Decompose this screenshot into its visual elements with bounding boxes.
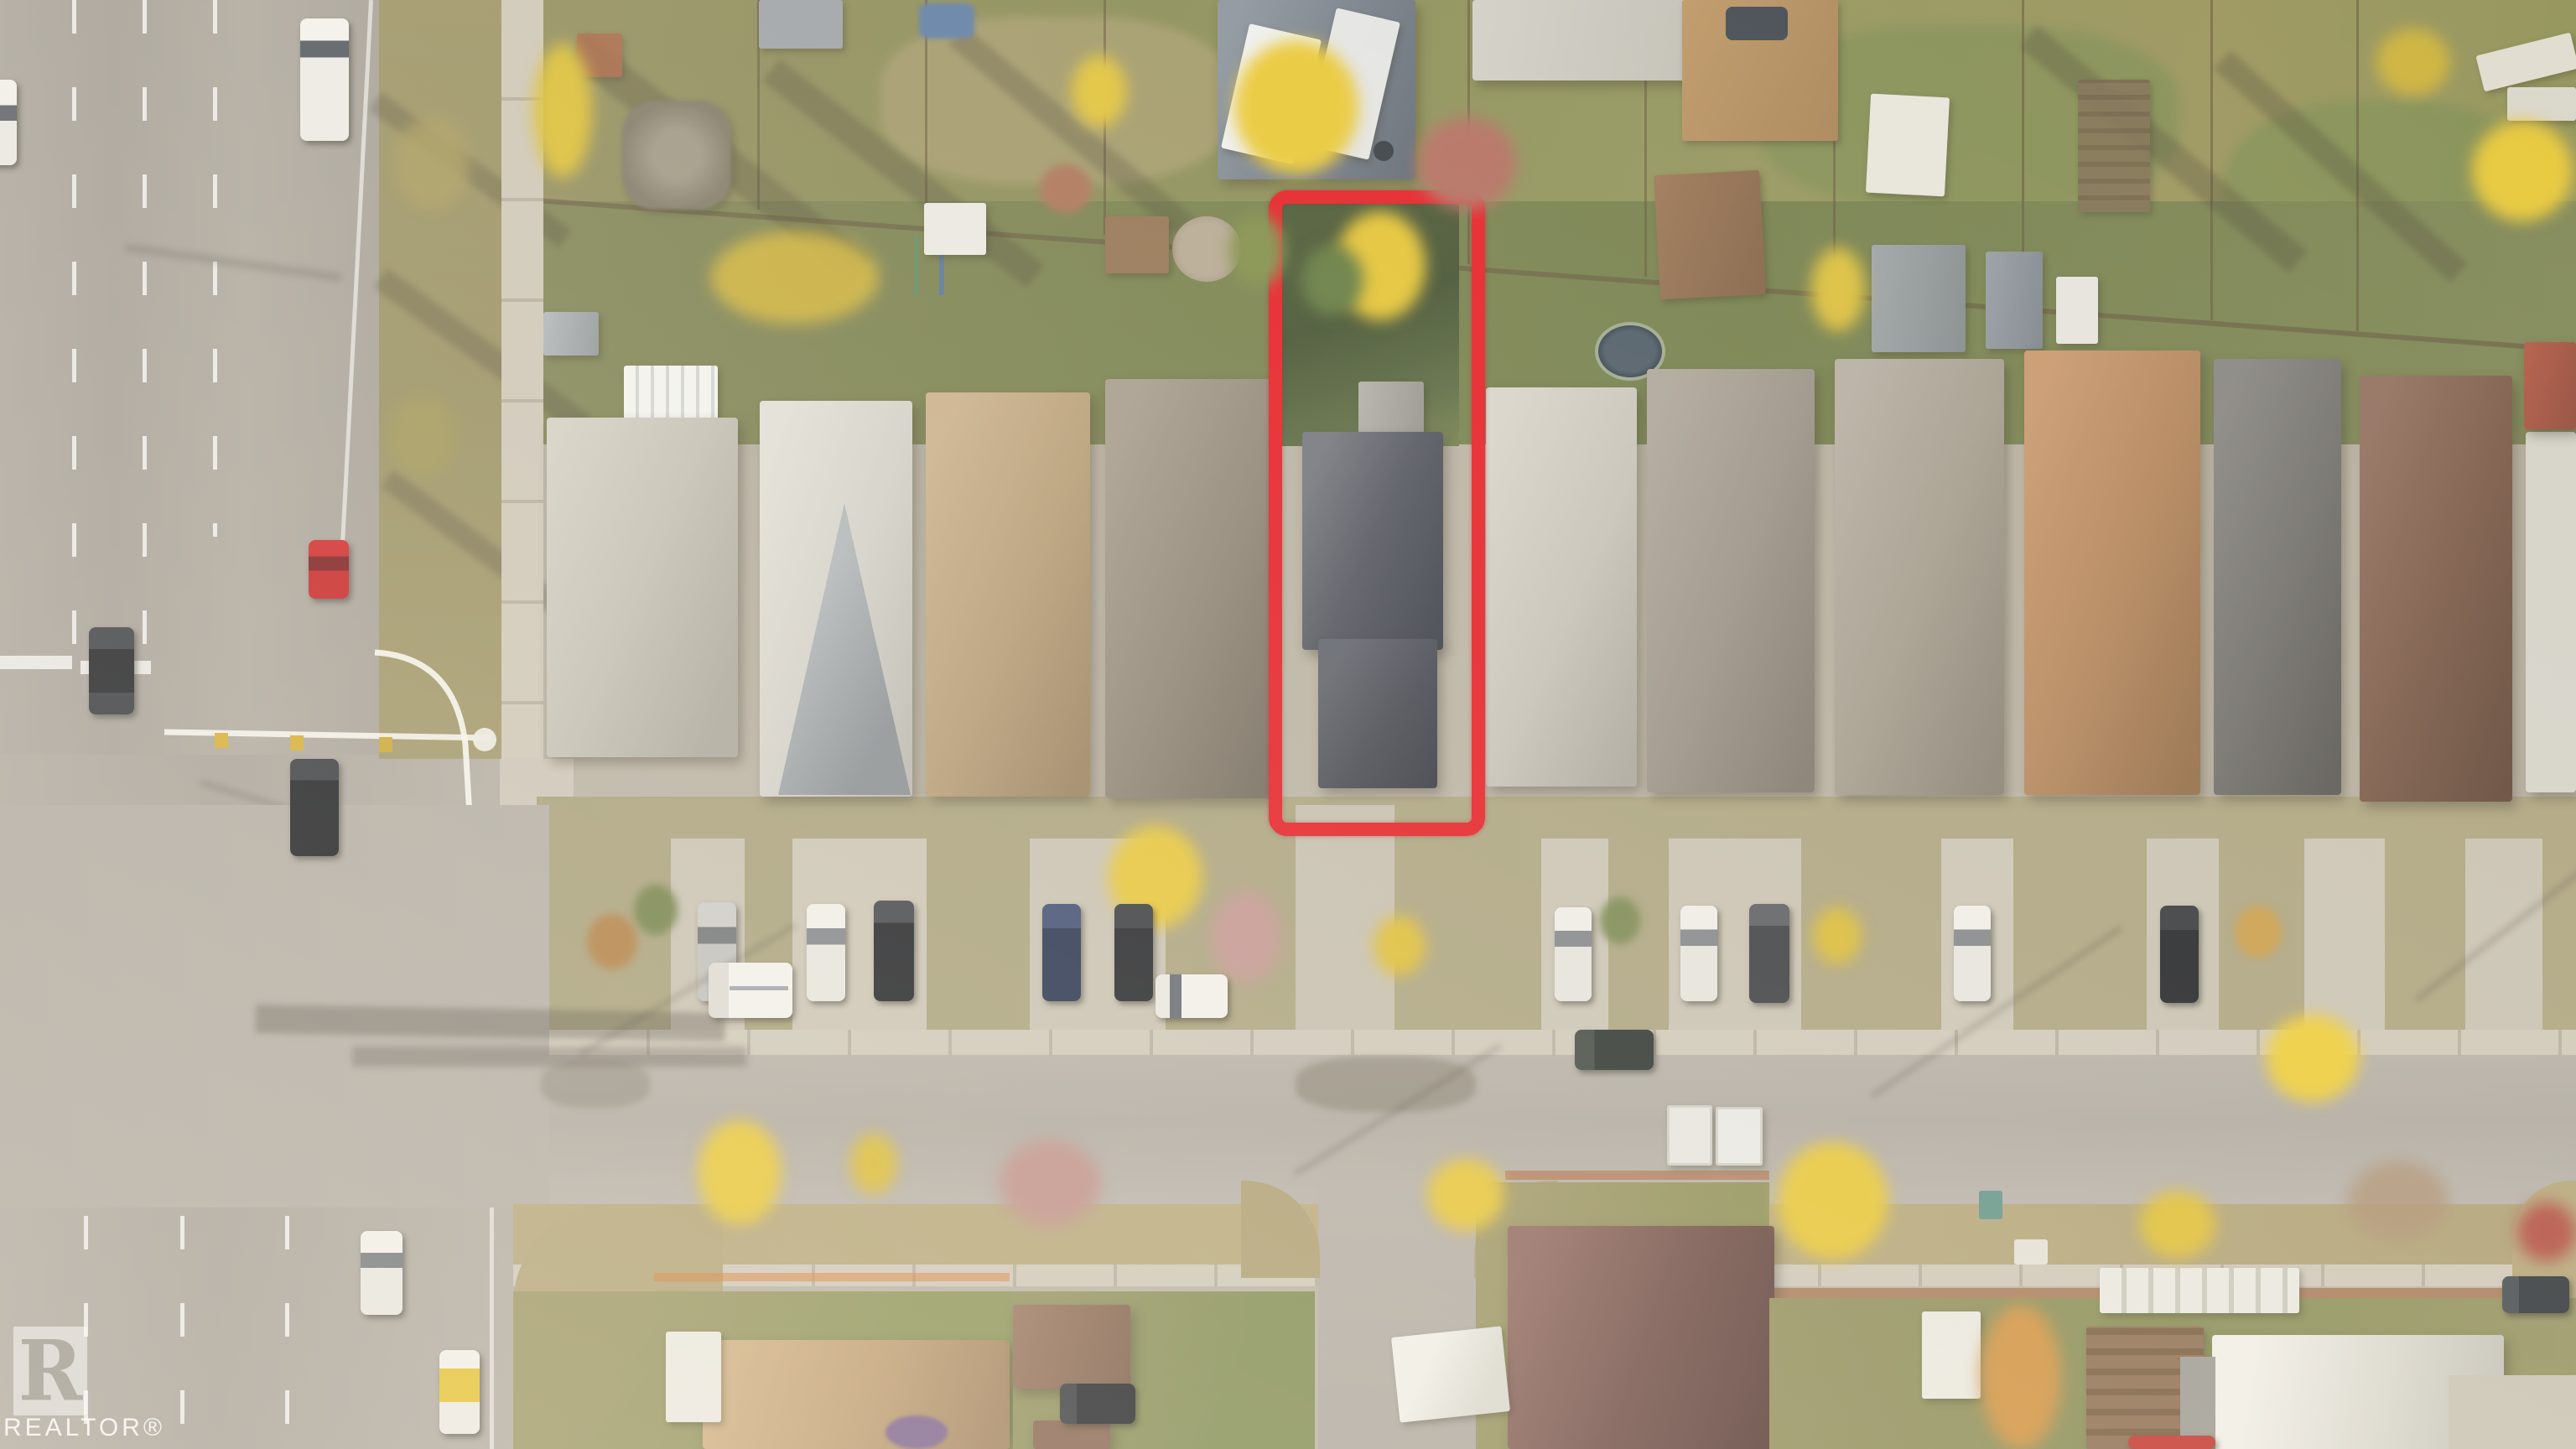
- parked-suv-dark: [1060, 1384, 1135, 1424]
- realtor-logo: R: [13, 1327, 87, 1415]
- green-tree: [1229, 215, 1285, 287]
- front-retaining-wall: [1505, 1171, 1769, 1180]
- aerial-photo-scene: R REALTOR®: [0, 0, 2576, 1449]
- property-highlight-outline: [1269, 190, 1485, 836]
- driveway-subject: [1296, 805, 1394, 1033]
- white-rv: [1866, 94, 1950, 197]
- white-block-stacks: [2100, 1268, 2299, 1313]
- parked-car-white: [1680, 906, 1717, 1001]
- house-roof-graybrown-gable: [1647, 369, 1815, 792]
- parked-suv-black: [874, 901, 914, 1001]
- patio-furniture: [1726, 7, 1788, 40]
- pink-red-tree: [1417, 117, 1516, 210]
- house-roof-orangebrown: [2024, 351, 2200, 795]
- house-roof-tan-hip: [926, 392, 1090, 797]
- autumn-bush: [2235, 906, 2282, 958]
- white-van: [300, 18, 349, 141]
- parked-car-white: [807, 904, 845, 1001]
- utility-box-teal: [1979, 1191, 2002, 1219]
- edge-line: [490, 1206, 494, 1449]
- yellow-tree: [2376, 29, 2450, 96]
- maroon-house-roof: [1508, 1226, 1774, 1449]
- pink-tree: [1211, 891, 1281, 983]
- yellow-tree: [1813, 907, 1862, 964]
- bare-trees: [2348, 1161, 2449, 1242]
- utility-box-white: [2014, 1239, 2048, 1265]
- yellow-tree: [1427, 1159, 1504, 1231]
- corner-house-roof-tan: [703, 1340, 1010, 1449]
- yellow-tree: [1072, 55, 1127, 127]
- white-shed: [924, 203, 986, 255]
- purple-playhouse: [885, 1415, 948, 1449]
- pink-bare-tree: [1000, 1140, 1100, 1226]
- white-shed: [2056, 277, 2098, 344]
- yellow-bushes: [711, 231, 879, 324]
- parked-car-white: [1954, 906, 1991, 1001]
- lot-fence: [2210, 0, 2213, 320]
- autumn-bush: [587, 914, 637, 969]
- yellow-tree-large: [1234, 40, 1358, 174]
- parked-car-black: [2160, 906, 2199, 1003]
- parked-suv-gray: [1749, 904, 1789, 1003]
- utility-cube-truck: [709, 963, 792, 1018]
- traffic-signal: [290, 735, 304, 750]
- taxi-yellow-stripe: [439, 1350, 480, 1434]
- traffic-signal: [379, 737, 392, 752]
- white-sedan-arterial: [361, 1231, 402, 1315]
- fire-pit: [1040, 164, 1092, 213]
- red-vehicle-sliver: [2128, 1436, 2215, 1449]
- yellow-tree: [2140, 1191, 2215, 1258]
- concrete-pad: [2449, 1375, 2576, 1449]
- black-car-at-stop: [89, 627, 134, 714]
- garden-pergola: [2078, 80, 2150, 212]
- signal-mast-arm: [164, 732, 491, 738]
- red-roof-sliver: [2524, 342, 2576, 429]
- bus-shelter-glass: [1667, 1105, 1712, 1166]
- red-car: [309, 540, 349, 599]
- realtor-logo-letter: R: [18, 1329, 82, 1412]
- dry-lawn-patch: [880, 17, 1233, 184]
- white-car-main-street: [1156, 974, 1228, 1018]
- lane-line: [180, 1216, 184, 1449]
- lane-line: [285, 1216, 289, 1449]
- yellow-tree-small: [850, 1134, 897, 1194]
- house-roof-edge-sliver: [2526, 432, 2576, 792]
- yellow-tree: [698, 1120, 782, 1224]
- leaf-litter: [541, 1061, 650, 1108]
- house-roof-redbrown: [2360, 376, 2512, 802]
- parked-suv-dark-right: [2502, 1276, 2569, 1313]
- yellow-tree: [2472, 121, 2573, 221]
- blue-tarp: [919, 3, 974, 39]
- white-rv: [2507, 87, 2576, 121]
- signal-pole-base: [473, 728, 496, 751]
- parked-car-blue: [1042, 904, 1081, 1001]
- parked-car-black: [1114, 904, 1153, 1001]
- rock-garden: [622, 101, 731, 210]
- white-shed: [1922, 1311, 1981, 1399]
- top-house-roof: [759, 0, 843, 49]
- white-rv-trailer: [1391, 1326, 1510, 1422]
- bottom-house-roof-brown: [1033, 1420, 1110, 1449]
- leaf-litter: [1296, 1057, 1476, 1112]
- red-shrub: [2517, 1202, 2576, 1261]
- parked-car-white: [1555, 907, 1592, 1001]
- house-roof-darkgray: [2214, 359, 2341, 795]
- realtor-wordmark: REALTOR®: [3, 1414, 165, 1442]
- brown-garage-roof: [1654, 170, 1766, 299]
- yellow-tree: [1811, 247, 1865, 331]
- black-suv-intersection: [290, 759, 339, 856]
- bus-shelter-glass: [1716, 1107, 1763, 1166]
- house-roof-graybrown-hip: [1105, 379, 1271, 798]
- gray-shed: [1986, 252, 2043, 349]
- house-roof-lightgray-hip: [1486, 387, 1637, 787]
- white-deck: [666, 1332, 721, 1422]
- truck-roof-ladder: [730, 986, 788, 990]
- green-bush: [634, 885, 678, 935]
- wood-deck-small: [1105, 216, 1169, 273]
- orange-tree-column: [1981, 1305, 2061, 1449]
- greenhouse-panels: [624, 366, 718, 423]
- yellow-tree: [533, 44, 592, 178]
- roof-vent: [1374, 141, 1394, 161]
- suv-parked-on-street: [1575, 1030, 1654, 1070]
- driveway: [2465, 839, 2542, 1033]
- house-roof-gray-hip: [547, 418, 738, 757]
- house-roof-taupe-gable: [1835, 359, 2004, 795]
- green-bush: [1600, 897, 1640, 944]
- driveway: [2304, 839, 2385, 1033]
- white-pickup-edge: [0, 80, 17, 165]
- crack-seal-patch: [352, 1046, 746, 1067]
- gray-shed: [1872, 245, 1966, 352]
- orange-mesh-fence: [654, 1273, 1010, 1281]
- yellow-tree: [1374, 916, 1426, 976]
- big-yellow-tree: [2266, 1015, 2360, 1102]
- traffic-signal: [215, 733, 228, 748]
- yellow-tree: [1778, 1142, 1888, 1259]
- bottom-house-roof-brown: [1013, 1305, 1130, 1389]
